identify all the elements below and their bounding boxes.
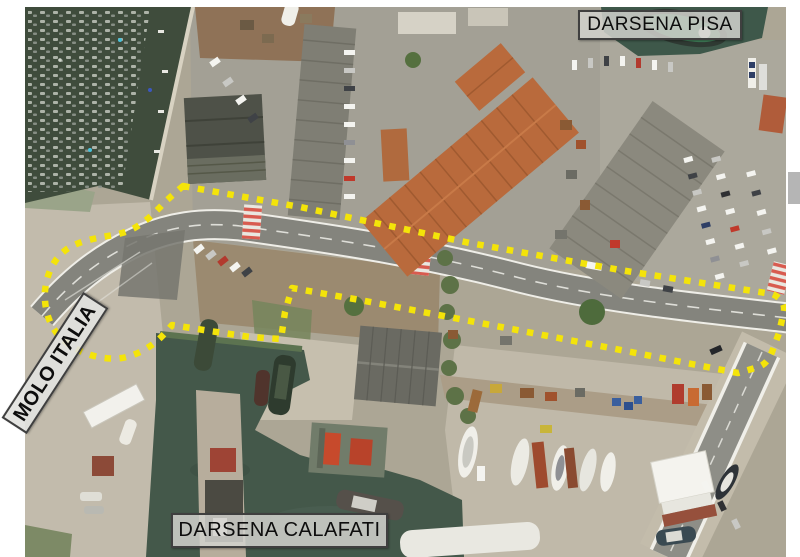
label-darsena-calafati: DARSENA CALAFATI [171, 513, 388, 548]
scrollbar-thumb[interactable] [788, 172, 800, 204]
crane-barge [308, 422, 387, 477]
aerial-port-map: DARSENA PISA MOLO ITALIA DARSENA CALAFAT… [0, 0, 800, 557]
label-darsena-pisa: DARSENA PISA [578, 10, 742, 40]
warehouse-dark [184, 94, 266, 184]
quay-shed [468, 8, 508, 26]
shed-orange [381, 128, 410, 181]
satellite-scene [0, 0, 800, 557]
shack-red [92, 456, 114, 476]
quay-shed [398, 12, 456, 34]
warehouse-center-bottom [354, 326, 442, 407]
shed-orange-right-edge [759, 95, 788, 134]
scrollbar-track[interactable] [786, 0, 800, 557]
crosswalk [242, 204, 262, 239]
